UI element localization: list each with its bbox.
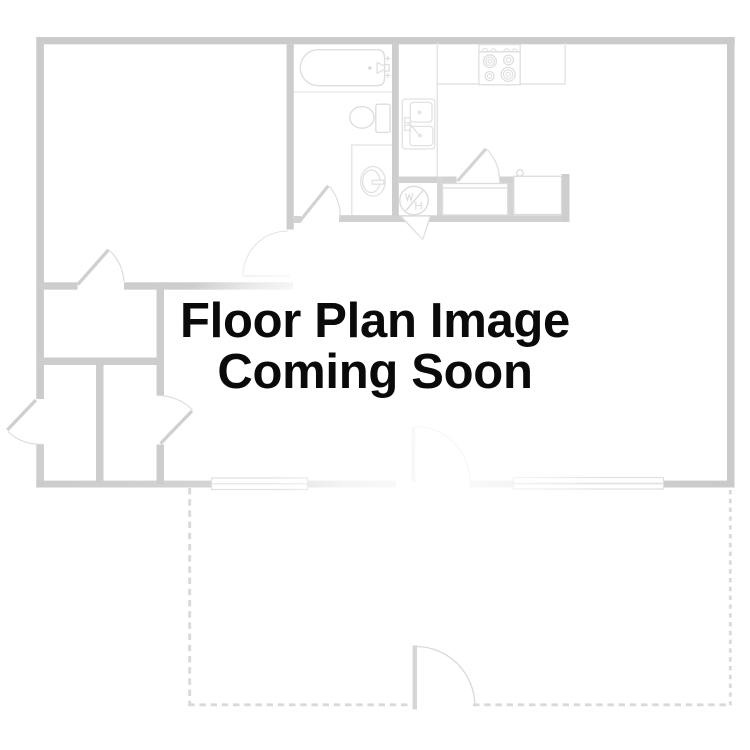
svg-text:Coming Soon: Coming Soon [217,345,532,399]
svg-text:Floor Plan Image: Floor Plan Image [180,294,570,348]
